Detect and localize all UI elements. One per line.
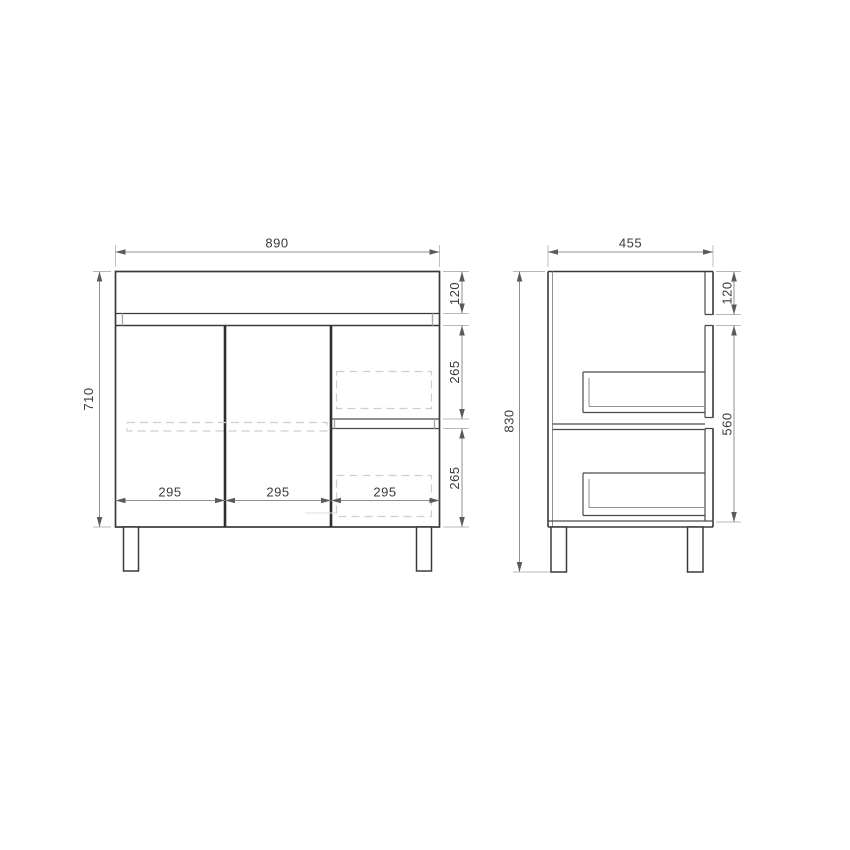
vanity-technical-drawing: 890 710 120 265 bbox=[0, 0, 850, 850]
side-benchtop-notch-caps bbox=[705, 315, 714, 326]
dim-side-depth: 455 bbox=[548, 236, 713, 268]
dim-side-lower-body: 560 bbox=[716, 326, 741, 523]
dim-label-front-lower-drawer: 265 bbox=[447, 466, 462, 489]
front-view: 890 710 120 265 bbox=[81, 236, 469, 572]
dim-label-front-upper-drawer: 265 bbox=[447, 360, 462, 383]
dim-front-lower-drawer: 265 bbox=[443, 429, 469, 528]
dim-front-upper-drawer: 265 bbox=[443, 326, 469, 420]
dim-label-front-section-3: 295 bbox=[373, 485, 396, 500]
dim-label-front-top-panel: 120 bbox=[447, 282, 462, 305]
dim-label-side-top-panel: 120 bbox=[720, 281, 735, 304]
dim-front-width: 890 bbox=[116, 236, 440, 268]
front-leg-left bbox=[124, 527, 139, 571]
dim-label-side-height: 830 bbox=[502, 409, 517, 432]
side-leg-front bbox=[688, 527, 704, 572]
dim-label-front-height: 710 bbox=[81, 387, 96, 410]
side-upper-drawer-profile bbox=[583, 372, 705, 413]
dim-label-side-depth: 455 bbox=[619, 236, 642, 251]
front-leg-right bbox=[417, 527, 432, 571]
side-leg-back bbox=[551, 527, 567, 572]
dim-side-height: 830 bbox=[502, 272, 550, 573]
side-cabinet bbox=[548, 272, 714, 573]
dim-label-side-lower-body: 560 bbox=[720, 412, 735, 435]
dim-label-front-section-1: 295 bbox=[158, 485, 181, 500]
side-drawer-notch-caps bbox=[705, 418, 714, 429]
side-view: 455 830 120 560 bbox=[502, 236, 741, 573]
dim-front-height: 710 bbox=[81, 272, 111, 528]
dim-label-front-section-2: 295 bbox=[266, 485, 289, 500]
dim-front-top-panel: 120 bbox=[443, 272, 469, 314]
dim-label-front-width: 890 bbox=[265, 236, 288, 251]
front-cabinet bbox=[116, 272, 440, 572]
dim-side-top-panel: 120 bbox=[716, 272, 741, 315]
drawing-canvas: 890 710 120 265 bbox=[0, 0, 850, 850]
side-lower-drawer-profile bbox=[583, 473, 705, 516]
